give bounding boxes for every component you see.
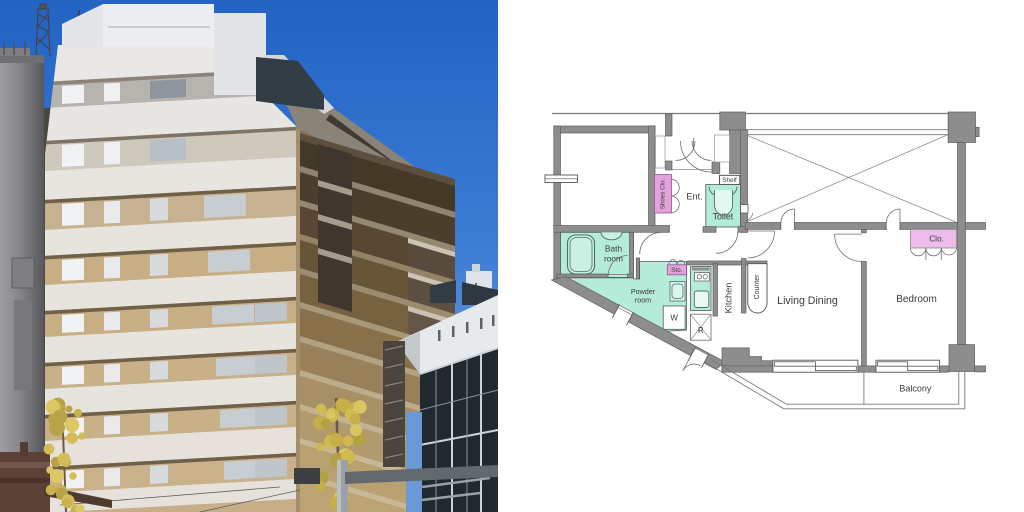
svg-text:R: R [698, 326, 704, 335]
svg-text:Shelf: Shelf [722, 177, 737, 184]
svg-text:Bath: Bath [605, 244, 623, 254]
svg-text:Toilet: Toilet [713, 212, 734, 222]
svg-text:Ent.: Ent. [686, 192, 702, 202]
svg-text:Clo.: Clo. [929, 235, 944, 244]
svg-text:Kitchen: Kitchen [724, 283, 734, 314]
svg-text:Balcony: Balcony [899, 384, 932, 394]
svg-text:Shoes Clo.: Shoes Clo. [659, 179, 666, 210]
svg-text:Bedroom: Bedroom [896, 294, 937, 305]
svg-text:Sto.: Sto. [671, 267, 683, 274]
svg-text:Counter: Counter [754, 274, 761, 300]
svg-text:W: W [670, 314, 678, 323]
svg-text:room: room [635, 296, 651, 305]
svg-text:Living Dining: Living Dining [777, 295, 838, 307]
